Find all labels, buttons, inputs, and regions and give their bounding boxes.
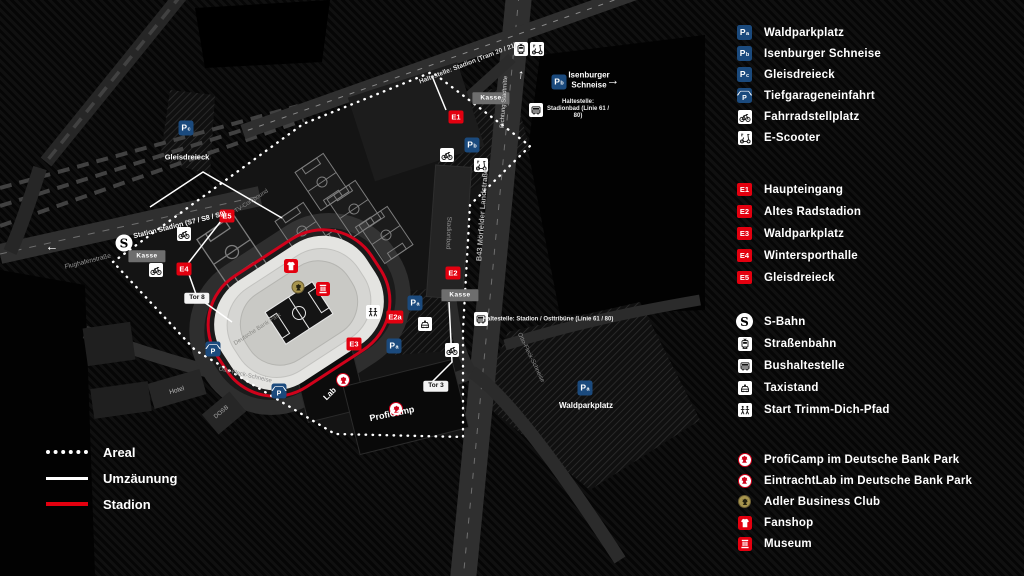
legend-label: Stadion xyxy=(103,497,151,512)
legend-label: EintrachtLab im Deutsche Bank Park xyxy=(764,475,972,487)
legend-item-eintrachtlab: EintrachtLab im Deutsche Bank Park xyxy=(736,473,972,488)
parking-c-icon: Pc xyxy=(737,67,752,82)
parking-a-icon: Pa xyxy=(737,25,752,40)
legend-item-bushaltestelle: Bushaltestelle xyxy=(736,358,890,373)
legend-item-areal: Areal xyxy=(46,444,177,460)
forest-block-north xyxy=(195,0,330,68)
legend-item-adler-business-club: Adler Business Club xyxy=(736,494,972,509)
legend-label: Fahrradstellplatz xyxy=(764,111,859,123)
legend-label: Bushaltestelle xyxy=(764,360,845,372)
forest-block-east xyxy=(528,35,705,315)
legend-item-tiefgarageneinfahrt: P Tiefgarageneinfahrt xyxy=(736,88,881,103)
parking-lot-gleisdreieck xyxy=(160,90,215,175)
legend-label: Haupteingang xyxy=(764,184,843,196)
dotted-line-sample xyxy=(46,450,88,454)
building-west-2 xyxy=(90,381,152,419)
parking-b-icon: Pb xyxy=(737,46,752,61)
legend-group-club: ProfiCamp im Deutsche Bank Park Eintrach… xyxy=(736,452,972,551)
legend-item-proficamp: ProfiCamp im Deutsche Bank Park xyxy=(736,452,972,467)
legend-label: E-Scooter xyxy=(764,132,820,144)
legend-label: Taxistand xyxy=(764,382,819,394)
entrance-e1-icon: E1 xyxy=(737,183,752,196)
legend-label: Wintersporthalle xyxy=(764,250,858,262)
legend-group-entrances: E1 Haupteingang E2 Altes Radstadion E3 W… xyxy=(736,182,861,285)
legend-item-gleisdreieck-entrance: E5 Gleisdreieck xyxy=(736,270,861,285)
legend-label: Museum xyxy=(764,538,812,550)
line-legend: Areal Umzäunung Stadion xyxy=(46,444,177,512)
legend-group-transit: S S-Bahn Straßenbahn Bushaltestelle Taxi… xyxy=(736,314,890,417)
tram-icon xyxy=(738,337,752,351)
eintracht-crest-icon xyxy=(738,453,752,467)
taxi-icon xyxy=(738,381,752,395)
legend-item-waldparkplatz-entrance: E3 Waldparkplatz xyxy=(736,226,861,241)
legend-item-altes-radstadion: E2 Altes Radstadion xyxy=(736,204,861,219)
entrance-e2-icon: E2 xyxy=(737,205,752,218)
forest-block-southwest xyxy=(0,270,95,576)
legend-item-umzaeunung: Umzäunung xyxy=(46,470,177,486)
building-west-1 xyxy=(83,322,136,366)
legend-label: Fanshop xyxy=(764,517,813,529)
legend-item-stadion: Stadion xyxy=(46,496,177,512)
legend-label: Waldparkplatz xyxy=(764,27,844,39)
entrance-e3-icon: E3 xyxy=(737,227,752,240)
legend-label: ProfiCamp im Deutsche Bank Park xyxy=(764,454,959,466)
legend-item-wintersporthalle: E4 Wintersporthalle xyxy=(736,248,861,263)
scooter-icon xyxy=(738,131,752,145)
museum-icon xyxy=(738,537,752,551)
stadium-area-map-page: PcPbPbPaPaPaPPE1E2E2aE3E4E5SKasseKasseKa… xyxy=(0,0,1024,576)
legend-item-e-scooter: E-Scooter xyxy=(736,130,881,145)
legend-item-haupteingang: E1 Haupteingang xyxy=(736,182,861,197)
legend-label: Isenburger Schneise xyxy=(764,48,881,60)
red-line-sample xyxy=(46,502,88,506)
bus-icon xyxy=(738,359,752,373)
legend-label: Waldparkplatz xyxy=(764,228,844,240)
trimm-dich-pfad-icon xyxy=(738,403,752,417)
legend-item-fahrradstellplatz: Fahrradstellplatz xyxy=(736,109,881,124)
legend-item-museum: Museum xyxy=(736,536,972,551)
building-hotel xyxy=(147,369,206,409)
legend-item-gleisdreieck-parking: Pc Gleisdreieck xyxy=(736,67,881,82)
entrance-e5-icon: E5 xyxy=(737,271,752,284)
solid-line-sample xyxy=(46,477,88,480)
bicycle-icon xyxy=(738,110,752,124)
fanshop-icon xyxy=(738,516,752,530)
legend-item-fanshop: Fanshop xyxy=(736,515,972,530)
legend-label: Start Trimm-Dich-Pfad xyxy=(764,404,890,416)
sbahn-icon: S xyxy=(736,313,753,330)
legend-label: Tiefgarageneinfahrt xyxy=(764,90,875,102)
legend-label: Straßenbahn xyxy=(764,338,837,350)
parking-lot-waldparkplatz xyxy=(480,302,700,490)
legend-item-waldparkplatz: Pa Waldparkplatz xyxy=(736,25,881,40)
legend-label: Umzäunung xyxy=(103,471,177,486)
legend-label: S-Bahn xyxy=(764,316,805,328)
legend-group-parking: Pa Waldparkplatz Pb Isenburger Schneise … xyxy=(736,25,881,145)
legend-item-taxistand: Taxistand xyxy=(736,380,890,395)
legend-label: Areal xyxy=(103,445,136,460)
adler-business-club-icon xyxy=(738,495,751,508)
legend-item-trimm-dich-pfad: Start Trimm-Dich-Pfad xyxy=(736,402,890,417)
garage-icon: P xyxy=(737,88,752,103)
legend-item-sbahn: S S-Bahn xyxy=(736,314,890,329)
eintracht-crest-icon xyxy=(738,474,752,488)
legend-label: Gleisdreieck xyxy=(764,69,835,81)
legend-label: Gleisdreieck xyxy=(764,272,835,284)
legend-item-strassenbahn: Straßenbahn xyxy=(736,336,890,351)
legend-label: Adler Business Club xyxy=(764,496,880,508)
legend-label: Altes Radstadion xyxy=(764,206,861,218)
entrance-e4-icon: E4 xyxy=(737,249,752,262)
legend-item-isenburger-schneise: Pb Isenburger Schneise xyxy=(736,46,881,61)
